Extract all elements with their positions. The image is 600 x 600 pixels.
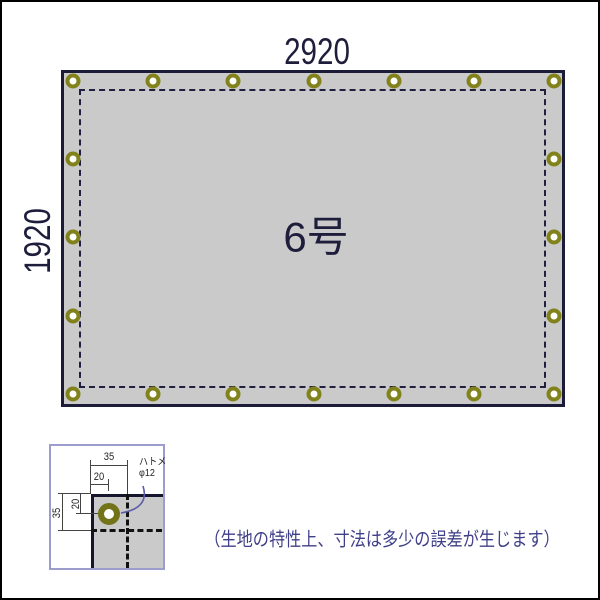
width-dimension-label: 2920 bbox=[284, 31, 350, 73]
height-dimension-label: 1920 bbox=[17, 208, 59, 274]
detail-grommet-icon bbox=[98, 503, 120, 525]
tarp-size-label: 6号 bbox=[283, 204, 348, 265]
diagram-page: 2920 1920 6号 35 20 35 20 ハトメ φ12 （生地の特性上… bbox=[0, 0, 600, 600]
tolerance-note: （生地の特性上、寸法は多少の誤差が生じます） bbox=[204, 525, 559, 552]
